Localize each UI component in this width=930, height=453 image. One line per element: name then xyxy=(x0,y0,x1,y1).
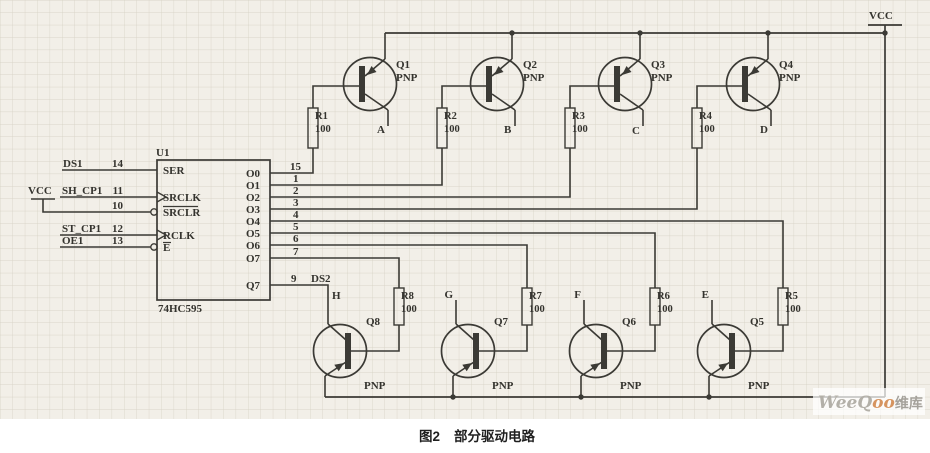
q3-designator: Q3 xyxy=(651,59,666,71)
net-label-vcc-left: VCC xyxy=(28,185,52,197)
figure-number: 图2 xyxy=(419,429,440,444)
junction-dot xyxy=(509,30,514,35)
ic-pin-e: E xyxy=(163,242,170,254)
resistor-r5-designator: R5 xyxy=(785,291,798,302)
ic-pin-o5: O5 xyxy=(246,228,261,240)
ic-pin-o1: O1 xyxy=(246,180,260,192)
watermark-text: WeeQoo维库 xyxy=(818,393,923,413)
q6-designator: Q6 xyxy=(622,316,637,328)
q8-designator: Q8 xyxy=(366,316,381,328)
watermark-accent: oo xyxy=(872,393,895,413)
pin-number-9: 9 xyxy=(291,273,297,285)
pin-number-5: 5 xyxy=(293,221,299,233)
schematic-page: VCC DS1 14 VCC SH_CP1 11 10 ST_CP1 12 OE… xyxy=(0,0,930,453)
junction-dot xyxy=(882,30,887,35)
pin-number-6: 6 xyxy=(293,233,299,245)
q2-designator: Q2 xyxy=(523,59,538,71)
output-label-e: E xyxy=(702,289,709,301)
q5-designator: Q5 xyxy=(750,316,765,328)
q1-designator: Q1 xyxy=(396,59,410,71)
pin-number-11: 11 xyxy=(113,185,123,197)
net-label-ds1: DS1 xyxy=(63,158,83,170)
output-label-d: D xyxy=(760,124,768,136)
figure-caption: 图2部分驱动电路 xyxy=(419,428,536,444)
ic-pin-srclr: SRCLR xyxy=(163,207,201,219)
resistor-r8-value: 100 xyxy=(401,304,417,315)
ic-pin-o7: O7 xyxy=(246,253,261,265)
junction-dot xyxy=(765,30,770,35)
ic-pin-srclk: SRCLK xyxy=(163,192,201,204)
junction-dot xyxy=(578,394,583,399)
watermark-latin: WeeQ xyxy=(818,393,872,413)
q8-type: PNP xyxy=(364,380,386,392)
junction-dot xyxy=(637,30,642,35)
pin-number-4: 4 xyxy=(293,209,299,221)
resistor-r3-value: 100 xyxy=(572,124,588,135)
resistor-r1-designator: R1 xyxy=(315,111,328,122)
q3-type: PNP xyxy=(651,72,673,84)
ic-pin-ser: SER xyxy=(163,165,185,177)
q7b-designator: Q7 xyxy=(494,316,509,328)
pin-number-15: 15 xyxy=(290,161,302,173)
ic-pin-o2: O2 xyxy=(246,192,261,204)
pin-number-14: 14 xyxy=(112,158,124,170)
circuit-schematic: VCC DS1 14 VCC SH_CP1 11 10 ST_CP1 12 OE… xyxy=(0,0,930,453)
watermark: WeeQoo维库 xyxy=(813,388,925,415)
output-label-a: A xyxy=(377,124,385,136)
net-label-oe1: OE1 xyxy=(62,235,83,247)
q5-type: PNP xyxy=(748,380,770,392)
ic-pin-o6: O6 xyxy=(246,240,261,252)
resistor-r2-designator: R2 xyxy=(444,111,457,122)
ic-part-number: 74HC595 xyxy=(158,303,203,315)
net-label-sh-cp1: SH_CP1 xyxy=(62,185,102,197)
pin-number-12: 12 xyxy=(112,223,124,235)
resistor-r8-designator: R8 xyxy=(401,291,414,302)
pin-number-3: 3 xyxy=(293,197,299,209)
output-label-h: H xyxy=(332,290,341,302)
ic-pin-q7: Q7 xyxy=(246,280,261,292)
ic-pin-o0: O0 xyxy=(246,168,261,180)
resistor-r5-value: 100 xyxy=(785,304,801,315)
resistor-r1-value: 100 xyxy=(315,124,331,135)
vcc-top-label: VCC xyxy=(869,10,893,22)
q2-type: PNP xyxy=(523,72,545,84)
resistor-r4-value: 100 xyxy=(699,124,715,135)
q4-designator: Q4 xyxy=(779,59,794,71)
pin-number-7: 7 xyxy=(293,246,299,258)
resistor-r7-value: 100 xyxy=(529,304,545,315)
junction-dot xyxy=(450,394,455,399)
pin-number-10: 10 xyxy=(112,200,124,212)
output-label-c: C xyxy=(632,125,640,137)
q6-type: PNP xyxy=(620,380,642,392)
q7b-type: PNP xyxy=(492,380,514,392)
net-label-st-cp1: ST_CP1 xyxy=(62,223,101,235)
resistor-r6-designator: R6 xyxy=(657,291,670,302)
resistor-r7-designator: R7 xyxy=(529,291,542,302)
output-label-g: G xyxy=(444,289,453,301)
ic-pin-o3: O3 xyxy=(246,204,261,216)
junction-dot xyxy=(706,394,711,399)
net-label-ds2: DS2 xyxy=(311,273,331,285)
q1-type: PNP xyxy=(396,72,418,84)
q4-type: PNP xyxy=(779,72,801,84)
ic-pin-rclk: RCLK xyxy=(163,230,195,242)
ic-designator: U1 xyxy=(156,147,169,159)
resistor-r6-value: 100 xyxy=(657,304,673,315)
pin-number-13: 13 xyxy=(112,235,124,247)
resistor-r2-value: 100 xyxy=(444,124,460,135)
pin-number-2: 2 xyxy=(293,185,299,197)
resistor-r4-designator: R4 xyxy=(699,111,713,122)
pin-number-1: 1 xyxy=(293,173,299,185)
ic-pin-o4: O4 xyxy=(246,216,261,228)
resistor-r3-designator: R3 xyxy=(572,111,585,122)
watermark-cjk: 维库 xyxy=(895,395,923,412)
output-label-b: B xyxy=(504,124,512,136)
figure-title: 部分驱动电路 xyxy=(454,428,535,444)
output-label-f: F xyxy=(574,289,581,301)
